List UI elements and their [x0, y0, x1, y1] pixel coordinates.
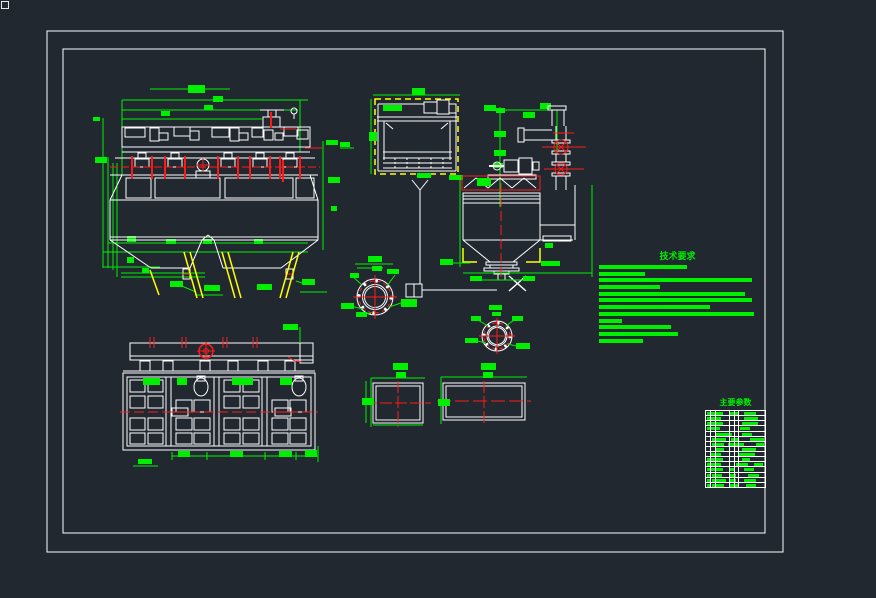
front-hopper-hatch: [150, 252, 299, 298]
front-elevation-view[interactable]: [93, 85, 354, 298]
parts-table[interactable]: [705, 410, 766, 488]
note-line: [599, 325, 671, 329]
plate-detail-2[interactable]: [437, 363, 531, 424]
note-line: [599, 292, 745, 296]
table-column-line: [734, 411, 735, 487]
table-cell-text: [712, 474, 722, 477]
parts-table-grid: [706, 411, 765, 487]
note-line: [599, 265, 687, 269]
table-column-line: [710, 411, 711, 487]
flange-bolt-circle-view-b[interactable]: [465, 305, 530, 354]
crosshair-pickbox-icon: [1, 1, 9, 9]
note-line: [599, 272, 645, 276]
technical-notes-block[interactable]: 技术要求: [599, 251, 756, 345]
plan-view[interactable]: [120, 324, 318, 466]
note-line: [599, 305, 710, 309]
table-cell-text: [728, 443, 744, 446]
plate-detail-1[interactable]: [362, 363, 431, 427]
table-cell-text: [746, 484, 756, 487]
table-cell-text: [730, 479, 736, 482]
plan-launder: [123, 343, 315, 371]
table-cell-text: [711, 458, 723, 461]
table-cell-text: [712, 484, 724, 487]
section-side-view[interactable]: [440, 106, 592, 291]
technical-notes-title: 技术要求: [599, 251, 756, 262]
table-cell-text: [730, 474, 736, 477]
middle-dimension-chain[interactable]: [484, 103, 557, 207]
detail-1-centerlines: [365, 381, 431, 427]
table-cell-text: [742, 458, 750, 461]
table-cell-text: [739, 453, 755, 456]
table-cell-text: [740, 427, 750, 430]
table-cell-text: [742, 448, 756, 451]
plan-launder-red-marks: [150, 337, 302, 362]
detail-2-text: [438, 363, 496, 406]
note-line: [599, 298, 752, 302]
table-cell-text: [748, 474, 759, 477]
table-cell-text: [712, 443, 724, 446]
note-line: [599, 339, 643, 343]
cad-drawing-canvas[interactable]: 技术要求 主要参数: [0, 0, 876, 598]
table-cell-text: [711, 453, 721, 456]
note-line: [599, 278, 752, 282]
chain-lines: [500, 107, 557, 207]
section-dimensions: [450, 180, 592, 280]
note-line: [599, 285, 660, 289]
table-column-line: [715, 411, 716, 487]
table-cell-text: [744, 412, 756, 415]
table-cell-text: [742, 433, 752, 436]
table-cell-text: [711, 468, 723, 471]
note-line: [599, 319, 622, 323]
front-dimension-lines: [103, 89, 354, 295]
detail-1-text: [362, 363, 408, 405]
note-line: [599, 312, 754, 316]
table-cell-text: [750, 438, 760, 441]
table-cell-text: [760, 438, 764, 441]
table-cell-text: [756, 443, 764, 446]
parts-table-title: 主要参数: [705, 397, 766, 408]
table-column-line: [729, 411, 730, 487]
table-column-line: [738, 411, 739, 487]
table-cell-text: [744, 468, 754, 471]
table-cell-text: [711, 417, 721, 420]
table-cell-text: [711, 412, 723, 415]
table-cell-text: [742, 422, 758, 425]
front-body-linework: [110, 108, 318, 279]
table-cell-text: [711, 422, 723, 425]
table-cell-text: [716, 448, 724, 451]
front-dimension-text: [93, 85, 350, 291]
table-cell-text: [744, 479, 756, 482]
weld-symbol-leader: [406, 180, 497, 297]
technical-notes-lines: [599, 265, 756, 343]
note-line: [599, 332, 678, 336]
table-cell-text: [711, 463, 721, 466]
detail-2-centerlines: [437, 381, 531, 424]
section-tank: [463, 185, 575, 291]
table-cell-text: [754, 463, 763, 466]
table-cell-text: [744, 417, 758, 420]
